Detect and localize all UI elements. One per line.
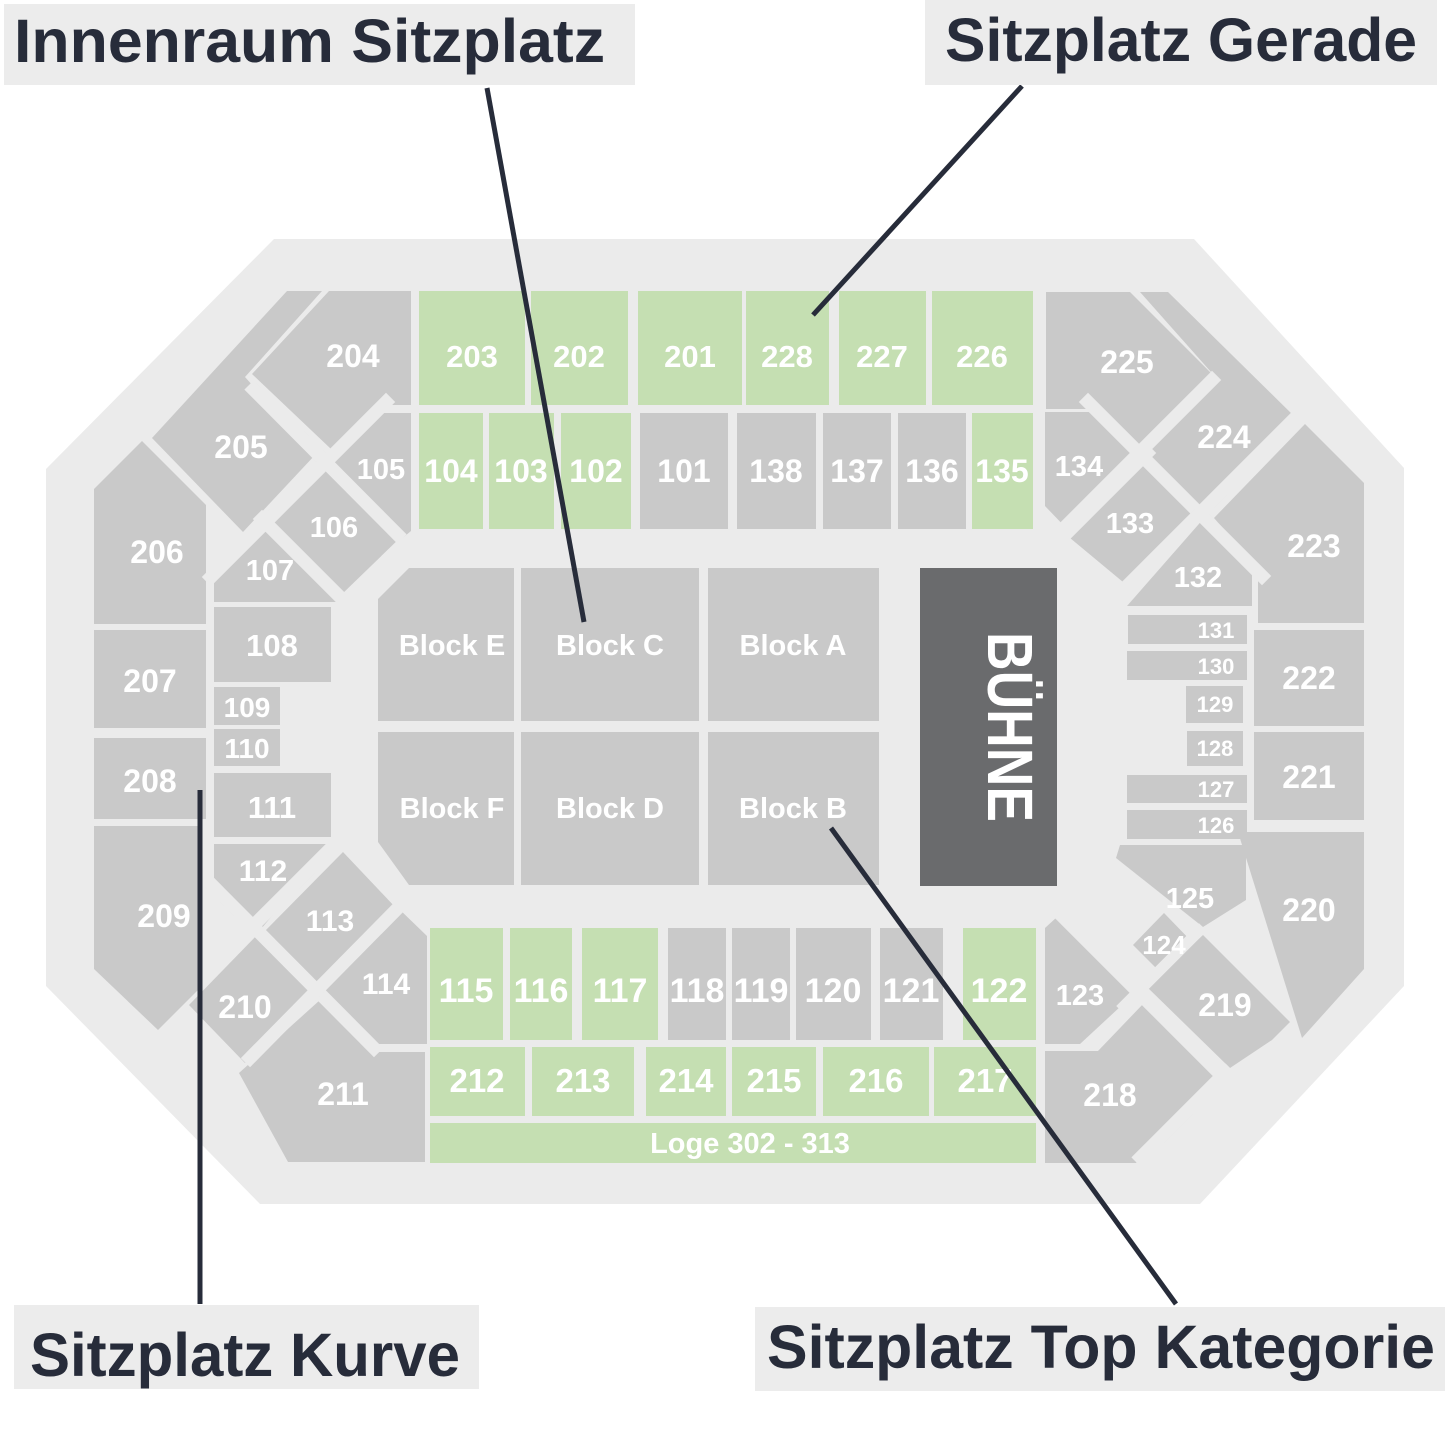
svg-text:103: 103 [494,453,547,489]
svg-text:227: 227 [856,339,908,374]
svg-text:223: 223 [1287,528,1340,564]
svg-text:133: 133 [1106,508,1154,540]
svg-text:138: 138 [749,453,802,489]
svg-text:226: 226 [956,339,1008,374]
svg-text:Sitzplatz Kurve: Sitzplatz Kurve [30,1321,460,1389]
svg-text:111: 111 [248,790,296,825]
svg-text:132: 132 [1174,562,1222,594]
svg-text:116: 116 [514,972,569,1010]
svg-text:122: 122 [971,972,1028,1010]
svg-text:225: 225 [1100,344,1153,380]
svg-text:109: 109 [224,692,271,723]
svg-text:134: 134 [1055,451,1103,483]
svg-text:Innenraum Sitzplatz: Innenraum Sitzplatz [14,7,605,75]
svg-text:108: 108 [246,628,298,663]
svg-text:135: 135 [975,453,1028,489]
svg-text:125: 125 [1166,883,1214,915]
svg-text:113: 113 [306,905,354,938]
svg-text:Block B: Block B [739,793,847,825]
svg-text:117: 117 [593,972,648,1010]
svg-text:136: 136 [905,453,958,489]
svg-text:205: 205 [214,429,267,465]
svg-text:Block F: Block F [400,793,505,825]
svg-text:105: 105 [357,454,405,486]
svg-text:219: 219 [1198,987,1251,1023]
svg-text:206: 206 [130,534,183,570]
svg-text:222: 222 [1282,660,1335,696]
svg-text:214: 214 [658,1062,714,1099]
svg-text:221: 221 [1282,759,1335,795]
svg-text:212: 212 [449,1062,504,1099]
svg-text:Loge 302 - 313: Loge 302 - 313 [650,1128,850,1160]
svg-text:Sitzplatz Gerade: Sitzplatz Gerade [945,6,1417,74]
svg-text:211: 211 [317,1076,369,1112]
svg-text:110: 110 [224,733,269,764]
svg-text:Block E: Block E [399,630,505,662]
svg-text:218: 218 [1083,1077,1136,1113]
svg-text:228: 228 [761,339,813,374]
svg-text:120: 120 [805,972,862,1010]
svg-text:202: 202 [553,339,605,374]
svg-text:209: 209 [137,898,190,934]
svg-text:208: 208 [123,763,176,799]
svg-text:106: 106 [310,512,358,544]
svg-text:215: 215 [746,1062,801,1099]
svg-text:121: 121 [883,972,940,1010]
svg-text:216: 216 [848,1062,903,1099]
svg-text:102: 102 [569,453,622,489]
svg-text:BÜHNE: BÜHNE [974,632,1046,822]
svg-text:129: 129 [1197,692,1234,717]
svg-text:124: 124 [1142,930,1186,960]
svg-text:104: 104 [424,453,478,489]
svg-text:123: 123 [1056,980,1104,1012]
svg-text:118: 118 [670,972,725,1010]
svg-text:137: 137 [830,453,883,489]
svg-text:119: 119 [734,972,789,1010]
svg-text:204: 204 [326,338,380,374]
svg-text:224: 224 [1197,419,1251,455]
svg-text:130: 130 [1198,654,1235,679]
svg-text:Block C: Block C [556,630,664,662]
svg-text:203: 203 [446,339,498,374]
svg-text:115: 115 [439,972,494,1010]
svg-text:112: 112 [239,855,287,888]
svg-text:128: 128 [1197,736,1234,761]
svg-text:Sitzplatz Top Kategorie: Sitzplatz Top Kategorie [767,1313,1435,1381]
svg-text:126: 126 [1198,813,1235,838]
svg-text:201: 201 [664,339,716,374]
svg-text:207: 207 [123,663,176,699]
svg-text:220: 220 [1282,892,1335,928]
svg-text:101: 101 [657,453,710,489]
svg-text:Block D: Block D [556,793,664,825]
svg-text:114: 114 [362,968,411,1001]
svg-text:127: 127 [1198,777,1235,802]
svg-text:210: 210 [218,989,271,1025]
svg-text:Block A: Block A [740,630,847,662]
svg-text:213: 213 [555,1062,610,1099]
svg-text:131: 131 [1198,618,1235,643]
svg-text:107: 107 [246,555,294,587]
